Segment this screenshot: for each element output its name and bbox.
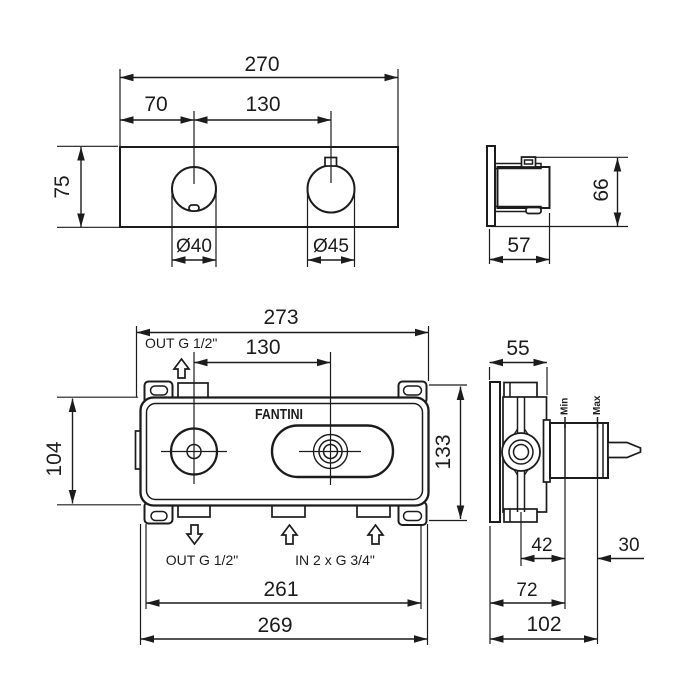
dim-left-knob-dia: Ø40 — [172, 191, 216, 267]
dim-hole-offset-label: 70 — [144, 93, 167, 116]
roughin-side-cylinder — [550, 423, 608, 478]
trim-left-knob-notch — [189, 205, 199, 211]
dim-trim-side-depth: 57 — [490, 213, 550, 264]
dim-roughin-body-height: 104 — [43, 397, 141, 505]
dim-trim-hole-offsets: 70 130 — [120, 93, 331, 120]
trim-side-view: 66 57 — [487, 146, 628, 264]
flow-arrow-down-outlet-icon — [187, 525, 202, 544]
dim-trim-width-label: 270 — [244, 53, 279, 76]
dim-plaster-min-label: 42 — [531, 535, 552, 556]
min-label: Min — [560, 398, 571, 415]
dim-roughin-overall-width-label: 269 — [257, 614, 292, 637]
dim-stem-length: 30 — [598, 535, 645, 559]
flow-arrow-up-top-icon — [174, 359, 189, 378]
trim-plate — [120, 147, 398, 227]
brand-logo: FANTINI — [255, 406, 303, 423]
trim-front-view: 270 70 130 75 Ø40 Ø45 — [51, 53, 398, 267]
roughin-side-plate — [490, 382, 500, 522]
dim-roughin-overall-height-label: 133 — [432, 434, 455, 469]
dim-left-knob-dia-label: Ø40 — [176, 236, 212, 257]
max-label: Max — [592, 395, 603, 415]
trim-side-body — [498, 167, 550, 208]
trim-side-bottom-tab — [526, 208, 541, 214]
dim-trim-height: 75 — [51, 146, 120, 227]
dim-trim-side-height-label: 66 — [590, 178, 613, 201]
outlet-bottom-label: OUT G 1/2" — [166, 552, 238, 568]
dim-trim-height-label: 75 — [51, 175, 74, 198]
outlet-top-label: OUT G 1/2" — [145, 335, 217, 351]
roughin-side-view: Min Max 55 42 30 72 — [490, 337, 645, 644]
dim-hole-spacing-label: 130 — [245, 93, 280, 116]
trim-side-top-tab — [522, 157, 536, 167]
roughin-side-top-tab — [504, 383, 537, 398]
roughin-side-spindle — [608, 443, 641, 458]
dim-roughin-body-height-label: 104 — [43, 441, 66, 476]
flow-arrow-up-inlet1-icon — [282, 525, 297, 544]
technical-drawing-page: 270 70 130 75 Ø40 Ø45 — [0, 0, 700, 700]
technical-drawing: 270 70 130 75 Ø40 Ø45 — [0, 0, 700, 700]
dim-roughin-overall-height: 133 — [429, 385, 467, 521]
dim-depth-max-label: 102 — [526, 613, 561, 636]
trim-side-plate — [487, 146, 495, 226]
flow-arrow-up-inlet2-icon — [368, 525, 383, 544]
dim-depth-min: 72 — [490, 580, 565, 603]
dim-stem-length-label: 30 — [618, 535, 639, 556]
dim-roughin-side-depth-label: 55 — [506, 337, 529, 360]
dim-right-knob-dia-label: Ø45 — [313, 236, 349, 257]
dim-trim-side-depth-label: 57 — [507, 234, 530, 257]
dim-roughin-hole-spacing-label: 130 — [245, 336, 280, 359]
dim-roughin-body-width-label: 261 — [263, 578, 298, 601]
inlets-label: IN 2 x G 3/4" — [295, 552, 375, 568]
dim-right-knob-dia: Ø45 — [308, 191, 355, 267]
dim-depth-max: 102 — [490, 613, 598, 639]
roughin-front-view: FANTINI OUT G 1/2" OUT G 1/2" IN 2 x G 3… — [43, 306, 467, 645]
dim-depth-min-label: 72 — [516, 580, 537, 601]
dim-plaster-min: 42 — [521, 535, 565, 559]
dim-roughin-width-label: 273 — [263, 306, 298, 329]
